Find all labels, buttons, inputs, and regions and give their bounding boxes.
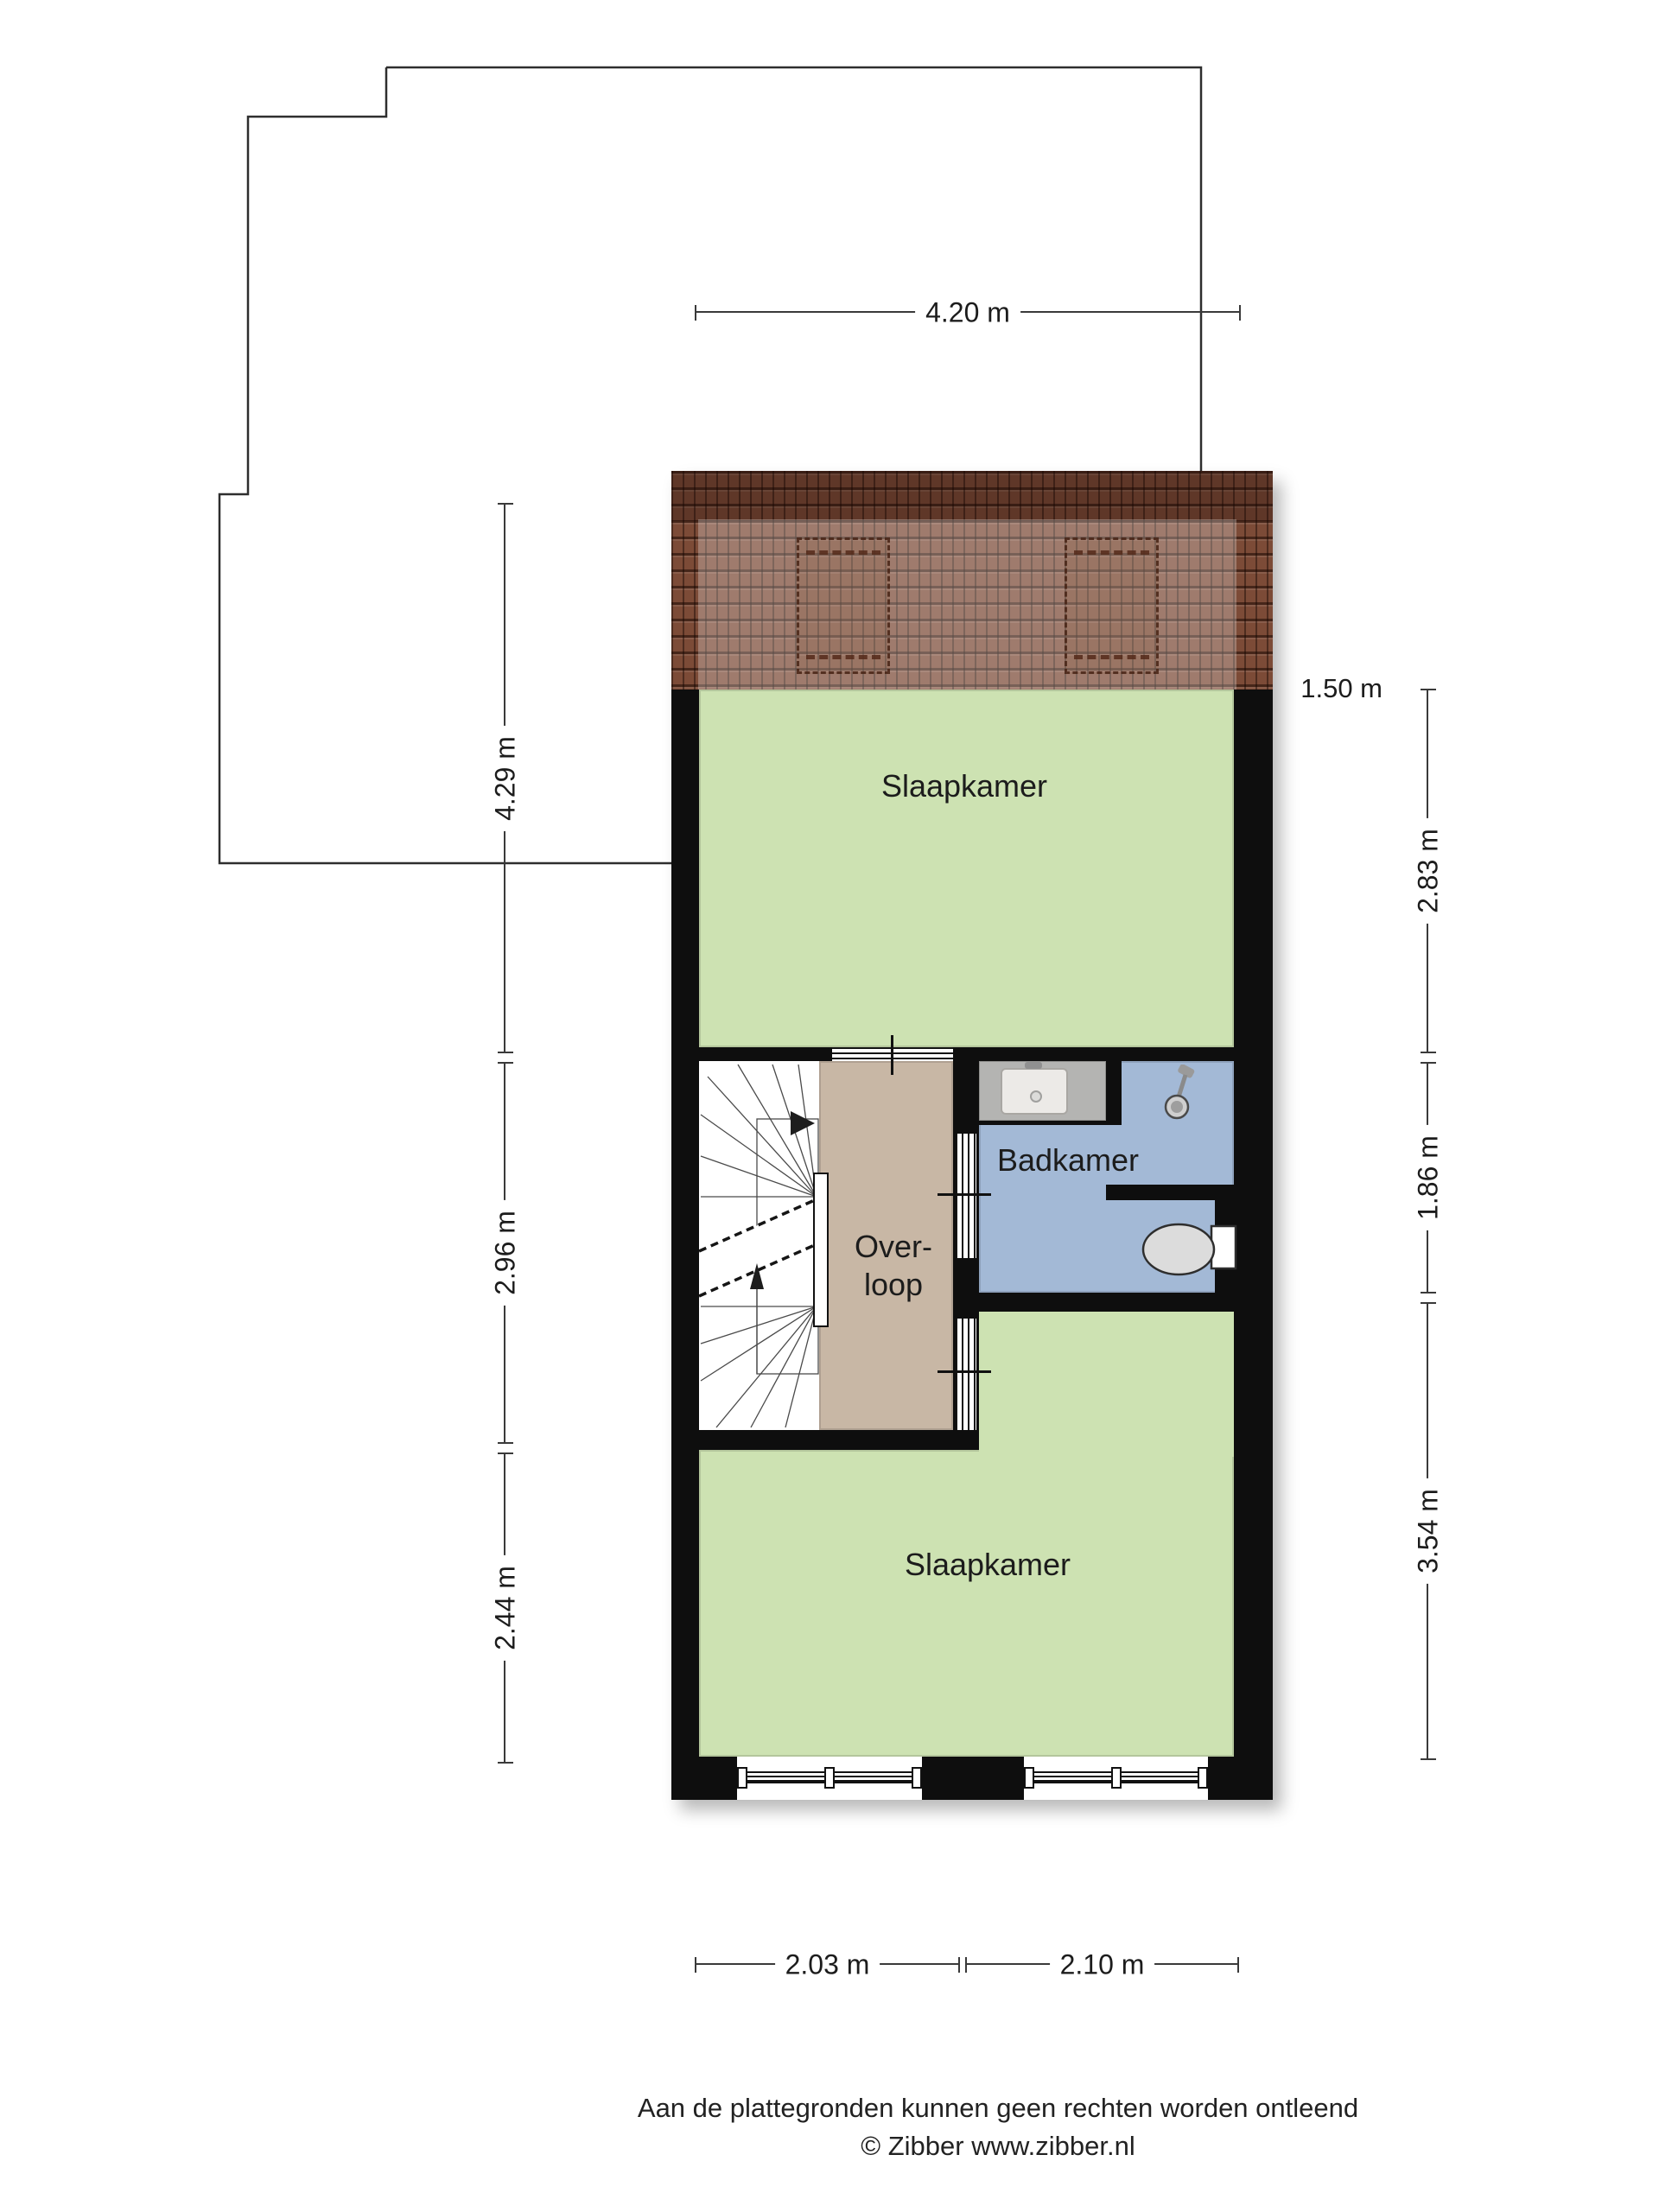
window-mullion <box>912 1767 922 1789</box>
dimension-roof-depth-label: 1.50 m <box>1296 673 1382 704</box>
door-opening-icon <box>956 1319 976 1430</box>
dimension-bottom-left: 2.03 m <box>696 1963 959 1965</box>
footer-disclaimer: Aan de plattegronden kunnen geen rechten… <box>638 2089 1358 2127</box>
room-label-landing-line1: Over- <box>855 1228 932 1266</box>
stairs-icon <box>699 1061 819 1430</box>
dimension-label: 1.86 m <box>1411 1125 1446 1230</box>
window-icon <box>1024 1757 1208 1800</box>
window-icon <box>737 1757 922 1800</box>
window-mullion <box>1198 1767 1208 1789</box>
window-mullion <box>1111 1767 1122 1789</box>
floorplan-page: Slaapkamer Badkamer Over- loop Slaapkame… <box>0 0 1659 2212</box>
dimension-label: 2.44 m <box>488 1555 524 1661</box>
dimension-label: 4.29 m <box>488 726 524 831</box>
roof-ridge-shading <box>671 471 1273 521</box>
room-bedroom-top <box>699 690 1234 1047</box>
dimension-bottom-right: 2.10 m <box>966 1963 1238 1965</box>
dimension-label: 2.03 m <box>775 1948 880 1983</box>
dimension-right-1: 2.83 m <box>1427 690 1428 1052</box>
dimension-right-3: 3.54 m <box>1427 1303 1428 1759</box>
dimension-top-width: 4.20 m <box>696 311 1240 313</box>
room-bedroom-bottom <box>979 1312 1234 1457</box>
room-label-landing-line2: loop <box>855 1266 932 1304</box>
stair-balustrade <box>813 1173 829 1327</box>
door-tick <box>938 1370 991 1373</box>
wall-bathroom-bottom <box>979 1293 1234 1312</box>
dimension-left-1: 4.29 m <box>504 504 505 1052</box>
dimension-left-3: 2.44 m <box>504 1453 505 1763</box>
dimension-label: 4.20 m <box>915 296 1020 331</box>
dimension-label: 2.10 m <box>1050 1948 1155 1983</box>
dimension-left-2: 2.96 m <box>504 1063 505 1443</box>
dimension-label: 3.54 m <box>1411 1478 1446 1584</box>
room-bedroom-bottom <box>699 1450 1234 1757</box>
window-mullion <box>737 1767 747 1789</box>
room-label-landing: Over- loop <box>855 1228 932 1304</box>
shower-head-icon <box>1142 1065 1220 1125</box>
window-mullion <box>1024 1767 1034 1789</box>
dimension-right-2: 1.86 m <box>1427 1063 1428 1293</box>
room-label-bedroom-top: Slaapkamer <box>881 767 1047 805</box>
wall-exterior-right <box>1234 690 1273 1800</box>
dimension-label: 2.83 m <box>1411 818 1446 924</box>
wall-toilet-partition <box>1106 1185 1234 1200</box>
dimension-label: 2.96 m <box>488 1200 524 1306</box>
wall-exterior-left <box>671 690 699 1800</box>
sink-faucet-icon <box>1025 1062 1042 1069</box>
door-tick <box>891 1035 893 1075</box>
wall-shower-partition <box>1106 1061 1122 1125</box>
wall-under-counter <box>979 1121 1122 1125</box>
footer-credit: © Zibber www.zibber.nl <box>638 2127 1358 2165</box>
wall-stairs-bottom <box>699 1430 979 1450</box>
footer: Aan de plattegronden kunnen geen rechten… <box>638 2089 1358 2165</box>
door-tick <box>938 1193 991 1196</box>
skylight-icon <box>1065 537 1159 674</box>
window-mullion <box>824 1767 835 1789</box>
door-opening-icon <box>956 1134 976 1258</box>
room-label-bedroom-bottom: Slaapkamer <box>905 1546 1071 1584</box>
sink-drain-icon <box>1030 1090 1042 1103</box>
skylight-icon <box>797 537 890 674</box>
room-label-bathroom: Badkamer <box>997 1141 1139 1179</box>
toilet-icon <box>1139 1222 1239 1277</box>
